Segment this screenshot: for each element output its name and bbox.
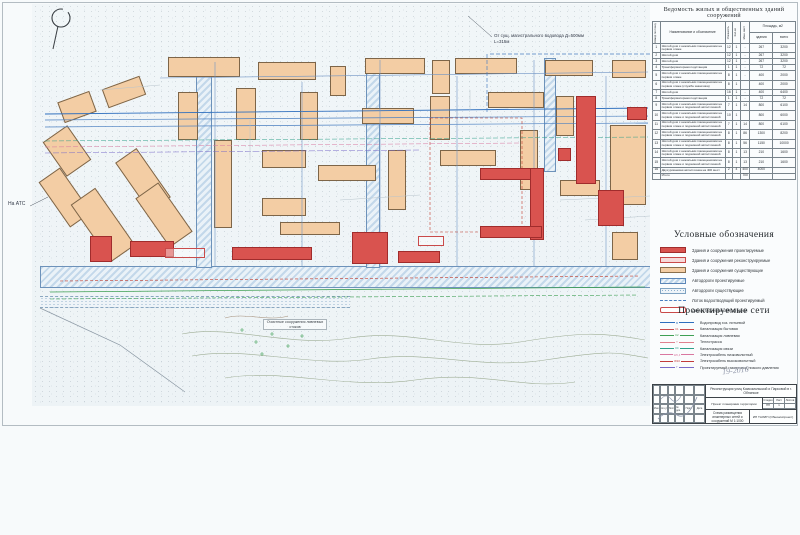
- table-cell: 400: [750, 80, 773, 89]
- table-cell: 9: [653, 102, 661, 111]
- network-item: W0,4Электрокабель низковольтный: [660, 353, 796, 357]
- legend-item: Здания и сооружения реконструируемые: [660, 257, 796, 263]
- table-cell: 8: [725, 149, 733, 158]
- table-cell: 12: [725, 44, 733, 53]
- total-value: 700: [740, 173, 750, 179]
- col-header-num: Номер по плану: [653, 22, 661, 44]
- table-cell: 800: [750, 120, 773, 129]
- legend-label: Здания и сооружения проектируемые: [692, 248, 764, 253]
- network-line-swatch: КС: [660, 347, 694, 350]
- table-cell: 1: [733, 120, 741, 129]
- table-cell: Жилой дом с нежилыми помещениями на перв…: [660, 71, 725, 80]
- existing-swatch: [660, 267, 686, 273]
- table-cell: 1: [733, 44, 741, 53]
- reconstructed-swatch: [660, 257, 686, 263]
- table-cell: 10000: [773, 139, 796, 148]
- legend-label: Автодороги существующие: [692, 288, 744, 293]
- table-row: 13Жилой дом с нежилыми помещениями на пе…: [653, 139, 796, 148]
- network-label: Электрокабель низковольтный: [700, 353, 753, 357]
- table-cell: 1: [733, 149, 741, 158]
- table-cell: 86: [740, 130, 750, 139]
- legend-label: Здания и сооружения существующие: [692, 268, 763, 273]
- table-cell: 14: [740, 102, 750, 111]
- legend-block: Условные обозначения Здания и сооружения…: [652, 230, 796, 317]
- table-cell: 1: [733, 71, 741, 80]
- table-cell: 6: [653, 80, 661, 89]
- table-row: 1Жилой дом с нежилыми помещениями на пер…: [653, 44, 796, 53]
- legend-item: Здания и сооружения проектируемые: [660, 247, 796, 253]
- treatment-facility-label: Очистные сооружения ливневых стоков: [263, 319, 327, 330]
- table-cell: [733, 173, 741, 179]
- legend-item: Здания и сооружения существующие: [660, 267, 796, 273]
- table-cell: 6000: [773, 111, 796, 120]
- table-cell: [740, 80, 750, 89]
- building-projected: [558, 148, 571, 161]
- network-label: Водопровод хоз. питьевой: [700, 321, 745, 325]
- col-header-area-bld: здания: [750, 33, 773, 44]
- table-cell: 2000: [773, 71, 796, 80]
- table-cell: 8: [725, 158, 733, 167]
- col-header-floors: Этажность: [725, 22, 733, 44]
- network-line-swatch: К2: [660, 334, 694, 337]
- table-cell: Жилой дом с нежилыми помещениями на перв…: [660, 139, 725, 148]
- table-cell: 210: [750, 158, 773, 167]
- road-existing-swatch: [660, 288, 686, 294]
- table-cell: 1: [733, 139, 741, 148]
- table-cell: 12: [653, 130, 661, 139]
- drain-swatch: [660, 300, 686, 301]
- table-cell: 800: [750, 111, 773, 120]
- legend-label: Лоток водоотводящий проектируемый: [692, 298, 765, 303]
- network-item: К2Канализация ливневая: [660, 334, 796, 338]
- table-title: Ведомость жилых и общественных зданий со…: [652, 7, 796, 19]
- table-cell: Жилой дом с нежилыми помещениями на перв…: [660, 44, 725, 53]
- signature-grid: Изм.Кол.учЛист№ док.Подп.Дата: [653, 385, 706, 423]
- building-projected: [398, 251, 440, 263]
- col-header-count: Кол-во: [733, 22, 741, 44]
- table-cell: 13: [740, 149, 750, 158]
- table-cell: 1: [733, 158, 741, 167]
- road-projected-swatch: [660, 278, 686, 284]
- network-item: ВВодопровод хоз. питьевой: [660, 321, 796, 325]
- ats-label: На АТС: [8, 201, 25, 207]
- table-cell: 1: [733, 102, 741, 111]
- projected-swatch: [660, 247, 686, 253]
- table-cell: 14: [653, 149, 661, 158]
- table-cell: 1150: [750, 139, 773, 148]
- table-row: 6Жилой дом с нежилыми помещениями на пер…: [653, 80, 796, 89]
- table-cell: 400: [750, 71, 773, 80]
- table-cell: [750, 173, 773, 179]
- table-cell: 15: [653, 158, 661, 167]
- legend-label: Здания и сооружения реконструируемые: [692, 258, 770, 263]
- buildings-table-block: Ведомость жилых и общественных зданий со…: [652, 7, 796, 180]
- table-row: 14Жилой дом с нежилыми помещениями на пе…: [653, 149, 796, 158]
- table-cell: 1300: [750, 130, 773, 139]
- network-label: Теплотрасса: [700, 340, 722, 344]
- table-cell: 8200: [773, 130, 796, 139]
- table-cell: 7: [725, 102, 733, 111]
- table-cell: 3200: [773, 44, 796, 53]
- network-item: ТТеплотрасса: [660, 340, 796, 344]
- demolished-parking: [418, 236, 444, 246]
- networks-block: Проектируемые сети ВВодопровод хоз. пить…: [652, 306, 796, 372]
- network-label: Канализация бытовая: [700, 327, 738, 331]
- legend-list: Здания и сооружения проектируемыеЗдания …: [652, 247, 796, 313]
- legend-item: Автодороги существующие: [660, 288, 796, 294]
- col-header-spots: Маш. мест: [740, 22, 750, 44]
- table-cell: 13: [740, 158, 750, 167]
- network-line-swatch: W10: [660, 360, 694, 363]
- table-cell: 5: [653, 71, 661, 80]
- table-cell: 10: [725, 111, 733, 120]
- table-cell: Жилой дом с нежилыми помещениями на перв…: [660, 102, 725, 111]
- network-item: КСКанализация связи: [660, 347, 796, 351]
- table-total-row: Итого700: [653, 173, 796, 179]
- network-label: Канализация ливневая: [700, 334, 740, 338]
- table-cell: -: [740, 44, 750, 53]
- table-cell: 56: [740, 139, 750, 148]
- table-cell: 1: [653, 44, 661, 53]
- table-cell: 210: [750, 149, 773, 158]
- table-cell: -: [740, 71, 750, 80]
- table-cell: Жилой дом с нежилыми помещениями на перв…: [660, 80, 725, 89]
- building-projected: [627, 107, 647, 120]
- demolished-parking: [165, 248, 205, 258]
- col-header-area-total: всего: [773, 33, 796, 44]
- building-projected: [480, 226, 542, 238]
- network-line-swatch: В: [660, 322, 694, 325]
- water-note-line2: L=315м: [494, 39, 614, 45]
- table-cell: Жилой дом с нежилыми помещениями на перв…: [660, 149, 725, 158]
- signature-scribble: [653, 385, 800, 535]
- table-cell: 13: [653, 139, 661, 148]
- sheet: { "colors":{"projected_building":"#d9534…: [0, 0, 800, 428]
- table-cell: 11: [653, 120, 661, 129]
- table-cell: 1: [733, 111, 741, 120]
- table-cell: 8: [725, 130, 733, 139]
- table-cell: 1600: [773, 158, 796, 167]
- legend-item: Лоток водоотводящий проектируемый: [660, 298, 796, 303]
- legend-item: Автодороги проектируемые: [660, 278, 796, 284]
- building-projected: [598, 190, 624, 226]
- table-cell: 14: [740, 120, 750, 129]
- legend-title: Условные обозначения: [652, 230, 796, 240]
- table-row: 9Жилой дом с нежилыми помещениями на пер…: [653, 102, 796, 111]
- table-cell: 800: [750, 102, 773, 111]
- table-cell: Жилой дом с нежилыми помещениями на перв…: [660, 120, 725, 129]
- network-label: Канализация связи: [700, 347, 733, 351]
- table-cell: Жилой дом с нежилыми помещениями на перв…: [660, 111, 725, 120]
- table-cell: 7: [725, 120, 733, 129]
- table-row: 11Жилой дом с нежилыми помещениями на пе…: [653, 120, 796, 129]
- network-line-swatch: К1: [660, 328, 694, 331]
- legend-label: Автодороги проектируемые: [692, 278, 745, 283]
- table-row: 10Жилой дом с нежилыми помещениями на пе…: [653, 111, 796, 120]
- north-arrow-icon: [44, 5, 78, 56]
- table-row: 15Жилой дом с нежилыми помещениями на пе…: [653, 158, 796, 167]
- col-header-name: Наименование и обозначение: [660, 22, 725, 44]
- table-cell: [725, 173, 733, 179]
- table-cell: Жилой дом с нежилыми помещениями на перв…: [660, 130, 725, 139]
- table-cell: 1: [733, 130, 741, 139]
- network-item: W10Электрокабель высоковольтный: [660, 359, 796, 363]
- network-item: К1Канализация бытовая: [660, 327, 796, 331]
- table-cell: 1600: [773, 149, 796, 158]
- col-header-area: Площадь, м2: [750, 22, 796, 33]
- table-cell: 6100: [773, 120, 796, 129]
- table-cell: 6100: [773, 102, 796, 111]
- table-row: 5Жилой дом с нежилыми помещениями на пер…: [653, 71, 796, 80]
- network-line-swatch: Т: [660, 341, 694, 344]
- table-row: 12Жилой дом с нежилыми помещениями на пе…: [653, 130, 796, 139]
- table-cell: Жилой дом с нежилыми помещениями на перв…: [660, 158, 725, 167]
- table-cell: 10: [653, 111, 661, 120]
- table-cell: 267: [750, 44, 773, 53]
- networks-title: Проектируемые сети: [652, 306, 796, 316]
- table-cell: [653, 173, 661, 179]
- table-cell: 1: [733, 80, 741, 89]
- building-projected: [352, 232, 388, 264]
- water-conduit-note: От сущ. магистрального водовода Д=500мм …: [494, 33, 614, 44]
- building-projected: [576, 96, 596, 184]
- table-cell: 8: [725, 71, 733, 80]
- network-label: Электрокабель высоковольтный: [700, 359, 755, 363]
- building-projected: [232, 247, 312, 260]
- network-line-swatch: Г: [660, 366, 694, 369]
- building-projected: [90, 236, 112, 262]
- table-cell: 2000: [773, 80, 796, 89]
- table-cell: 8: [725, 80, 733, 89]
- buildings-table: Номер по плану Наименование и обозначени…: [652, 21, 796, 180]
- buildings-table-body: 1Жилой дом с нежилыми помещениями на пер…: [653, 44, 796, 180]
- table-cell: [740, 111, 750, 120]
- networks-list: ВВодопровод хоз. питьевойК1Канализация б…: [652, 321, 796, 370]
- total-label: Итого: [660, 173, 725, 179]
- title-block: Изм.Кол.учЛист№ док.Подп.Дата Реконструк…: [652, 384, 797, 424]
- table-cell: [773, 173, 796, 179]
- table-cell: 8: [725, 139, 733, 148]
- network-line-swatch: W0,4: [660, 354, 694, 357]
